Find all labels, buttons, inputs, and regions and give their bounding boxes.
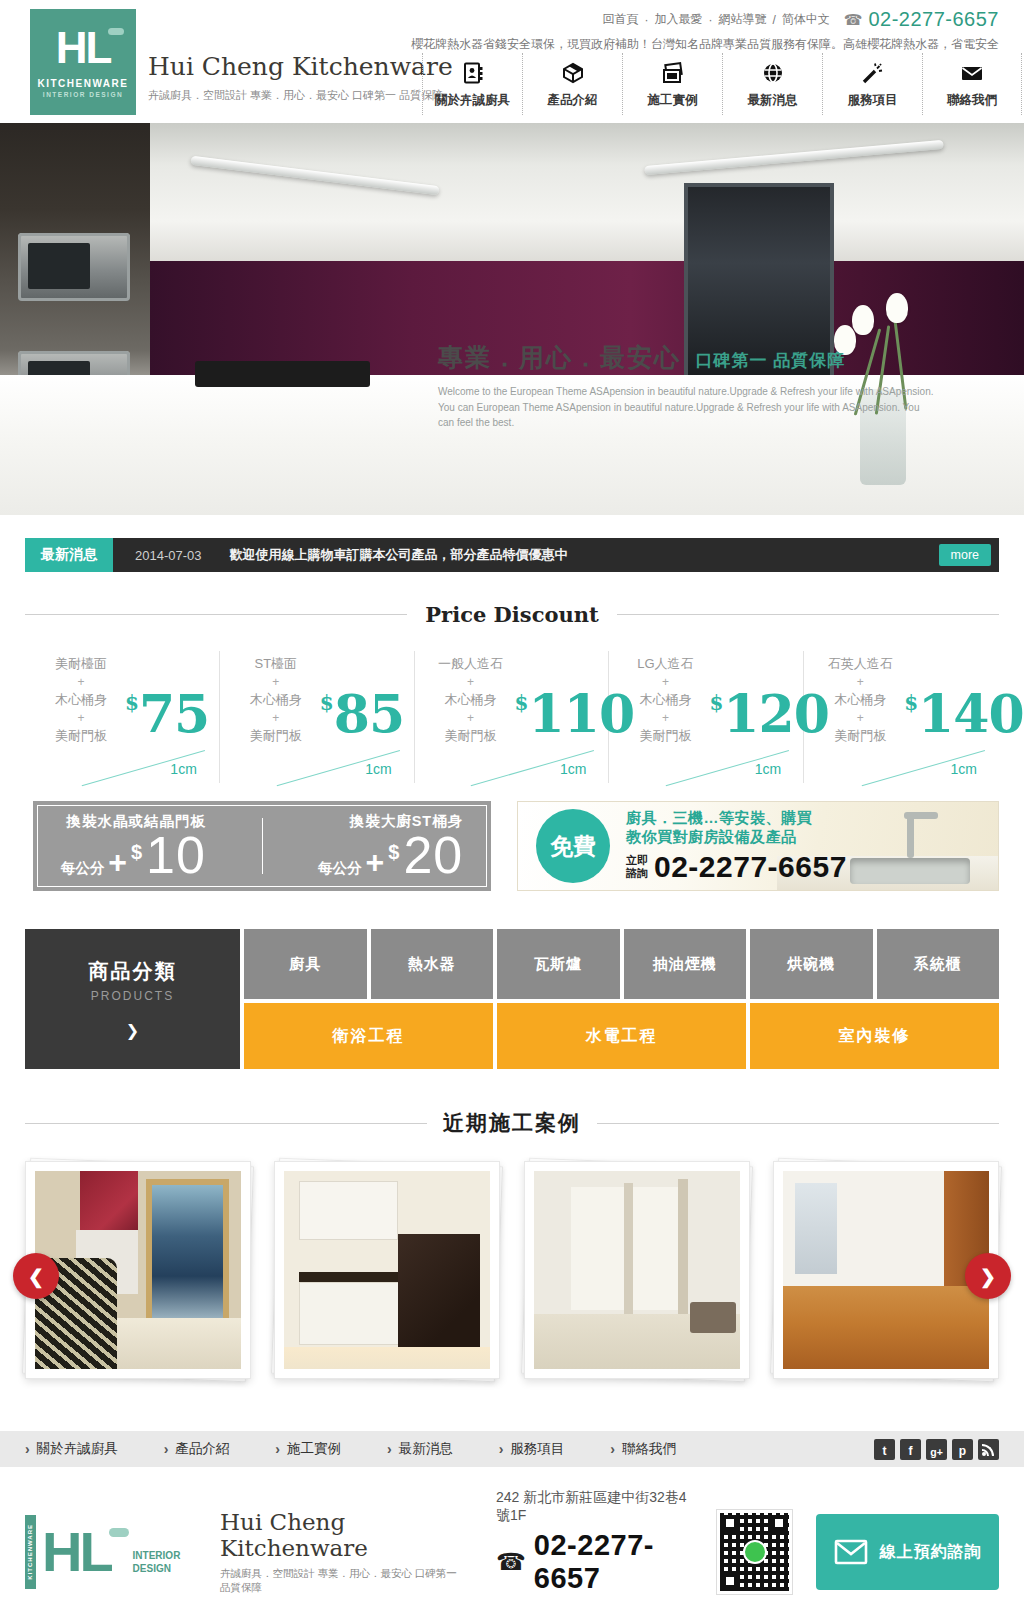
footer: KITCHENWARE HL INTERIOR DESIGN Hui Cheng… xyxy=(25,1467,999,1600)
nav-label: 最新消息 xyxy=(748,92,798,109)
case-photo[interactable] xyxy=(25,1161,251,1379)
carousel-prev-button[interactable]: ❮ xyxy=(13,1253,59,1299)
price-discount-heading: Price Discount xyxy=(25,602,999,627)
envelope-icon xyxy=(959,60,985,86)
free-consultation-banner[interactable]: 免費 廚具．三機…等安裝、購買 教你買對廚房設備及產品 立即 諮詢 02-227… xyxy=(517,801,999,891)
currency-symbol: $ xyxy=(515,691,529,715)
plus-sign: + xyxy=(812,674,908,691)
products-title: 商品分類 xyxy=(89,958,177,985)
plus-sign: + xyxy=(33,674,129,691)
price-unit: 1cm xyxy=(365,761,391,777)
addon-per-unit: 每公分 xyxy=(61,859,105,878)
rss-icon[interactable] xyxy=(978,1439,999,1460)
addon-pricing-banner: 換裝水晶或結晶門板 每公分 + $ 10 換裝大廚ST桶身 每公分 + $ 20 xyxy=(33,801,491,891)
consult-cta-word1: 立即 xyxy=(626,854,648,867)
hero-description: Welcome to the European Theme ASApension… xyxy=(438,384,938,431)
case-photo[interactable] xyxy=(274,1161,500,1379)
phone-icon: ☎ xyxy=(844,11,863,29)
hero-banner: 專業．用心．最安心 口碑第一 品質保障 Welcome to the Europ… xyxy=(0,123,1024,515)
plus-sign: + xyxy=(423,674,519,691)
price-card: 石英人造石 + 木心桶身 + 美耐門板 $140 1cm xyxy=(804,651,999,783)
price-card: LG人造石 + 木心桶身 + 美耐門板 $120 1cm xyxy=(609,651,804,783)
category-bathroom-works[interactable]: 衛浴工程 xyxy=(244,1003,493,1069)
price-unit: 1cm xyxy=(951,761,977,777)
footer-company-tagline: 卉誠廚具．空間設計 專業．用心．最安心 口碑第一 品質保障 xyxy=(220,1567,470,1595)
category-range-hood[interactable]: 抽油煙機 xyxy=(624,929,747,999)
chevron-icon: › xyxy=(25,1441,30,1457)
price-part: 木心桶身 xyxy=(423,691,519,710)
heading-rule xyxy=(617,614,999,615)
footer-link-news[interactable]: ›最新消息 xyxy=(387,1440,453,1458)
heading-rule xyxy=(25,1123,427,1124)
price-card: ST檯面 + 木心桶身 + 美耐門板 $85 1cm xyxy=(220,651,415,783)
cases-carousel: ❮ ❯ xyxy=(25,1161,999,1391)
price-part: 美耐門板 xyxy=(812,727,908,746)
price-part: 一般人造石 xyxy=(423,655,519,674)
price-card: 美耐檯面 + 木心桶身 + 美耐門板 $75 1cm xyxy=(25,651,220,783)
currency-symbol: $ xyxy=(131,841,142,864)
nav-item-cases[interactable]: 施工實例 xyxy=(622,53,722,115)
price-part: 美耐門板 xyxy=(228,727,324,746)
link-sitemap[interactable]: 網站導覽 xyxy=(718,11,766,28)
product-categories-header[interactable]: 商品分類 PRODUCTS ❯ xyxy=(25,929,240,1069)
footer-link-services[interactable]: ›服務項目 xyxy=(499,1440,565,1458)
news-more-button[interactable]: more xyxy=(939,544,991,566)
footer-link-contact[interactable]: ›聯絡我們 xyxy=(610,1440,676,1458)
price-part: 美耐門板 xyxy=(617,727,713,746)
currency-symbol: $ xyxy=(125,691,139,715)
recent-cases-heading: 近期施工案例 xyxy=(25,1109,999,1137)
plus-sign: + xyxy=(812,710,908,727)
hero-flower-decor xyxy=(852,305,874,335)
link-separator: · xyxy=(708,13,712,27)
footer-link-products[interactable]: ›產品介紹 xyxy=(164,1440,230,1458)
address-book-icon xyxy=(461,60,485,86)
nav-label: 服務項目 xyxy=(848,92,898,109)
category-kitchen-cabinets[interactable]: 廚具 xyxy=(244,929,367,999)
news-label: 最新消息 xyxy=(25,538,113,572)
chevron-right-icon: ❯ xyxy=(126,1021,139,1040)
price-unit: 1cm xyxy=(755,761,781,777)
price-value: 140 xyxy=(918,683,1024,744)
top-bar: 回首頁 · 加入最愛 · 網站導覽 / 简体中文 ☎ 02-2277-6657 … xyxy=(411,8,999,53)
brand-block: Hui Cheng Kitchenware 卉誠廚具．空間設計 專業．用心．最安… xyxy=(148,52,453,103)
chevron-icon: › xyxy=(610,1441,615,1457)
plus-sign: + xyxy=(228,674,324,691)
divider xyxy=(262,818,263,874)
category-plumbing-electric-works[interactable]: 水電工程 xyxy=(497,1003,746,1069)
case-photo-image xyxy=(783,1171,989,1369)
globe-icon xyxy=(761,60,785,86)
free-badge: 免費 xyxy=(536,809,610,883)
price-discount-title: Price Discount xyxy=(425,602,598,627)
product-categories: 商品分類 PRODUCTS ❯ 廚具 熱水器 瓦斯爐 抽油煙機 烘碗機 系統櫃 … xyxy=(25,929,999,1069)
footer-link-cases[interactable]: ›施工實例 xyxy=(275,1440,341,1458)
category-gas-stove[interactable]: 瓦斯爐 xyxy=(497,929,620,999)
plus-sign: + xyxy=(108,846,127,878)
link-simplified-chinese[interactable]: 简体中文 xyxy=(782,11,830,28)
phone-icon: ☎ xyxy=(496,1548,526,1576)
addon-item: 換裝水晶或結晶門板 每公分 + $ 10 xyxy=(61,812,206,881)
carousel-next-button[interactable]: ❯ xyxy=(965,1253,1011,1299)
link-separator: · xyxy=(644,13,648,27)
line-logo-dot xyxy=(743,1540,767,1564)
category-system-cabinet[interactable]: 系統櫃 xyxy=(877,929,1000,999)
category-interior-renovation[interactable]: 室內裝修 xyxy=(750,1003,999,1069)
nav-label: 聯絡我們 xyxy=(947,92,997,109)
footer-phone-number: 02-2277-6657 xyxy=(534,1529,695,1595)
consult-line1: 廚具．三機…等安裝、購買 xyxy=(626,809,847,828)
recent-cases-title: 近期施工案例 xyxy=(443,1109,581,1137)
price-part: 木心桶身 xyxy=(33,691,129,710)
price-part: ST檯面 xyxy=(228,655,324,674)
addon-per-unit: 每公分 xyxy=(318,859,362,878)
sink-decor xyxy=(850,858,970,884)
company-logo[interactable]: HL KITCHENWARE INTERIOR DESIGN xyxy=(30,9,136,115)
footer-address: 242 新北市新莊區建中街32巷4號1F xyxy=(496,1489,695,1525)
online-booking-button[interactable]: 線上預約諮詢 xyxy=(816,1514,999,1590)
chevron-icon: › xyxy=(499,1441,504,1457)
faucet-decor xyxy=(904,812,938,819)
footer-nav-bar: ›關於卉誠廚具 ›產品介紹 ›施工實例 ›最新消息 ›服務項目 ›聯絡我們 t … xyxy=(0,1431,1024,1467)
hero-microwave-decor xyxy=(18,233,130,301)
nav-label: 產品介紹 xyxy=(548,92,598,109)
footer-company-name: Hui Cheng Kitchenware xyxy=(220,1509,470,1561)
envelope-icon xyxy=(834,1539,868,1565)
price-part: 石英人造石 xyxy=(812,655,908,674)
site-header: HL KITCHENWARE INTERIOR DESIGN Hui Cheng… xyxy=(0,0,1024,123)
addon-price: 20 xyxy=(403,829,463,881)
logo-interior-text: INTERIOR DESIGN xyxy=(43,91,123,98)
nav-label: 關於卉誠廚具 xyxy=(435,92,510,109)
price-card: 一般人造石 + 木心桶身 + 美耐門板 $110 1cm xyxy=(415,651,610,783)
header-phone-number: 02-2277-6657 xyxy=(868,8,999,31)
logo-monogram: HL xyxy=(56,26,111,70)
footer-logo-strip: KITCHENWARE xyxy=(25,1515,36,1589)
products-subtitle: PRODUCTS xyxy=(91,989,174,1003)
promo-marquee-text: 櫻花牌熱水器省錢安全環保，現買政府補助！台灣知名品牌專業品質服務有保障。高雄櫻花… xyxy=(411,36,999,53)
currency-symbol: $ xyxy=(904,691,918,715)
nav-label: 施工實例 xyxy=(648,92,698,109)
footer-logo-monogram: HL xyxy=(42,1524,111,1580)
main-nav: 關於卉誠廚具 產品介紹 施工實例 最新消息 服務項目 xyxy=(422,53,1022,115)
footer-contact-block: 242 新北市新莊區建中街32巷4號1F ☎ 02-2277-6657 E-ma… xyxy=(496,1489,695,1600)
price-part: 美耐檯面 xyxy=(33,655,129,674)
magic-wand-icon xyxy=(860,60,886,86)
case-photo-image xyxy=(35,1171,241,1369)
price-part: 木心桶身 xyxy=(812,691,908,710)
logo-kitchenware-text: KITCHENWARE xyxy=(38,78,129,89)
news-date: 2014-07-03 xyxy=(135,548,202,563)
chevron-icon: › xyxy=(387,1441,392,1457)
hero-title: 專業．用心．最安心 xyxy=(438,343,681,371)
plus-sign: + xyxy=(33,710,129,727)
link-home[interactable]: 回首頁 xyxy=(602,11,638,28)
case-photo-image xyxy=(534,1171,740,1369)
hero-subtitle: 口碑第一 品質保障 xyxy=(695,351,845,370)
price-value: 75 xyxy=(139,683,209,744)
twitter-icon[interactable]: t xyxy=(874,1439,895,1460)
nav-item-contact[interactable]: 聯絡我們 xyxy=(922,53,1022,115)
category-water-heater[interactable]: 熱水器 xyxy=(371,929,494,999)
price-value: 85 xyxy=(334,683,404,744)
addon-price: 10 xyxy=(146,829,206,881)
company-name: Hui Cheng Kitchenware xyxy=(148,52,453,81)
news-bar: 最新消息 2014-07-03 歡迎使用線上購物車訂購本公司產品，部分產品特價優… xyxy=(25,538,999,572)
hero-flower-decor xyxy=(886,293,908,323)
price-part: 美耐門板 xyxy=(423,727,519,746)
hero-stove-decor xyxy=(195,361,370,387)
footer-brand-block: Hui Cheng Kitchenware 卉誠廚具．空間設計 專業．用心．最安… xyxy=(220,1509,470,1595)
plus-sign: + xyxy=(366,846,385,878)
social-icons: t f g+ p xyxy=(874,1439,999,1460)
facebook-icon[interactable]: f xyxy=(900,1439,921,1460)
consult-phone-number: 02-2277-6657 xyxy=(654,850,847,884)
category-dish-dryer[interactable]: 烘碗機 xyxy=(750,929,873,999)
footer-logo[interactable]: KITCHENWARE HL INTERIOR DESIGN xyxy=(25,1515,202,1589)
price-part: LG人造石 xyxy=(617,655,713,674)
currency-symbol: $ xyxy=(709,691,723,715)
price-unit: 1cm xyxy=(170,761,196,777)
company-tagline: 卉誠廚具．空間設計 專業．用心．最安心 口碑第一 品質保障 xyxy=(148,88,453,103)
plus-sign: + xyxy=(228,710,324,727)
product-box-icon xyxy=(560,60,586,86)
photos-icon xyxy=(660,60,686,86)
heading-rule xyxy=(597,1123,999,1124)
price-unit: 1cm xyxy=(560,761,586,777)
currency-symbol: $ xyxy=(320,691,334,715)
price-cards: 美耐檯面 + 木心桶身 + 美耐門板 $75 1cm ST檯面 + 木心桶身 +… xyxy=(25,651,999,783)
plus-sign: + xyxy=(617,674,713,691)
news-headline-link[interactable]: 歡迎使用線上購物車訂購本公司產品，部分產品特價優惠中 xyxy=(230,546,568,564)
online-booking-label: 線上預約諮詢 xyxy=(880,1542,982,1563)
addon-item: 換裝大廚ST桶身 每公分 + $ 20 xyxy=(318,812,463,881)
consult-cta-word2: 諮詢 xyxy=(626,867,648,880)
link-favorite[interactable]: 加入最愛 xyxy=(654,11,702,28)
price-part: 木心桶身 xyxy=(617,691,713,710)
nav-item-about[interactable]: 關於卉誠廚具 xyxy=(422,53,522,115)
hero-copy: 專業．用心．最安心 口碑第一 品質保障 Welcome to the Europ… xyxy=(438,341,978,431)
nav-item-services[interactable]: 服務項目 xyxy=(822,53,922,115)
promo-banners-row: 換裝水晶或結晶門板 每公分 + $ 10 換裝大廚ST桶身 每公分 + $ 20 xyxy=(25,801,999,891)
plus-sign: + xyxy=(423,710,519,727)
footer-logo-interior-text: INTERIOR DESIGN xyxy=(133,1549,202,1575)
currency-symbol: $ xyxy=(388,841,399,864)
price-part: 木心桶身 xyxy=(228,691,324,710)
nav-item-products[interactable]: 產品介紹 xyxy=(522,53,622,115)
plus-sign: + xyxy=(617,710,713,727)
nav-item-news[interactable]: 最新消息 xyxy=(722,53,822,115)
chevron-icon: › xyxy=(164,1441,169,1457)
case-photo[interactable] xyxy=(524,1161,750,1379)
plurk-icon[interactable]: p xyxy=(952,1439,973,1460)
footer-link-about[interactable]: ›關於卉誠廚具 xyxy=(25,1440,118,1458)
link-separator: / xyxy=(772,13,775,27)
consult-line2: 教你買對廚房設備及產品 xyxy=(626,828,847,847)
price-part: 美耐門板 xyxy=(33,727,129,746)
chevron-icon: › xyxy=(275,1441,280,1457)
google-plus-icon[interactable]: g+ xyxy=(926,1439,947,1460)
case-photo-image xyxy=(284,1171,490,1369)
line-qr-code xyxy=(717,1510,792,1594)
heading-rule xyxy=(25,614,407,615)
